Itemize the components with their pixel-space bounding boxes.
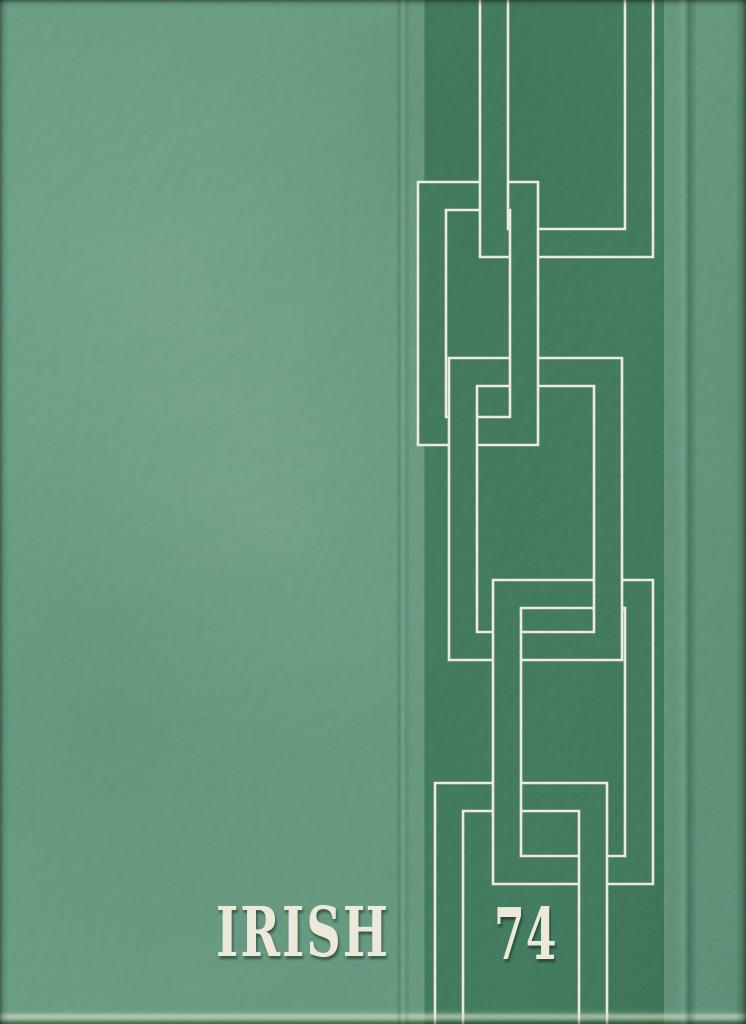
cover-year: 74 bbox=[494, 899, 558, 970]
leather-grain-overlay bbox=[0, 0, 746, 1024]
yearbook-cover: IRISH 74 bbox=[0, 0, 746, 1024]
cover-title: IRISH bbox=[216, 899, 390, 967]
